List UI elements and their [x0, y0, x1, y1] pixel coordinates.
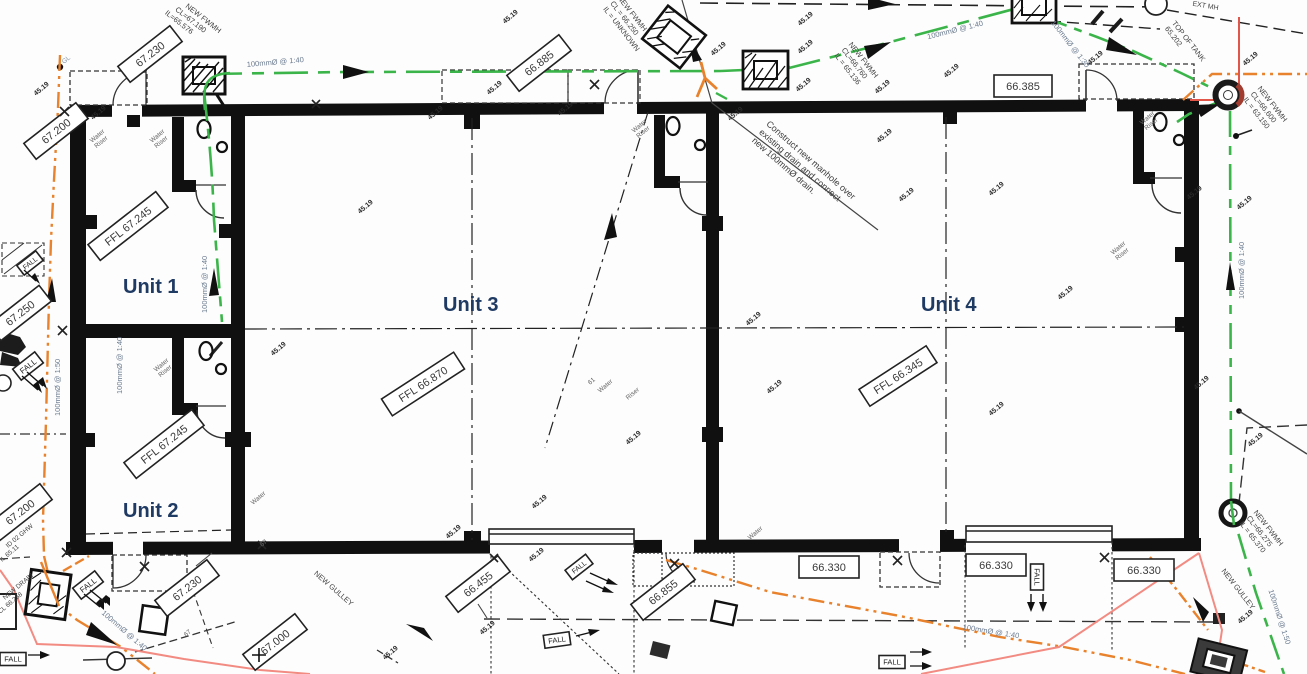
svg-text:Unit 1: Unit 1 [123, 276, 179, 298]
svg-text:100mmØ @ 1:40: 100mmØ @ 1:40 [1237, 242, 1246, 299]
svg-text:FALL: FALL [4, 655, 22, 664]
svg-text:FALL: FALL [1033, 568, 1042, 586]
svg-text:FALL: FALL [883, 658, 901, 667]
svg-text:Unit 3: Unit 3 [443, 294, 499, 316]
svg-text:Unit 4: Unit 4 [921, 294, 977, 316]
svg-text:66.330: 66.330 [812, 562, 846, 574]
svg-text:66.385: 66.385 [1006, 81, 1040, 93]
svg-text:100mmØ @ 1:40: 100mmØ @ 1:40 [115, 337, 124, 394]
svg-text:66.330: 66.330 [1127, 565, 1161, 577]
svg-text:100mmØ @ 1:50: 100mmØ @ 1:50 [53, 359, 62, 416]
svg-text:66.330: 66.330 [979, 560, 1013, 572]
svg-text:100mmØ @ 1:40: 100mmØ @ 1:40 [200, 256, 209, 313]
svg-text:Unit 2: Unit 2 [123, 500, 179, 522]
